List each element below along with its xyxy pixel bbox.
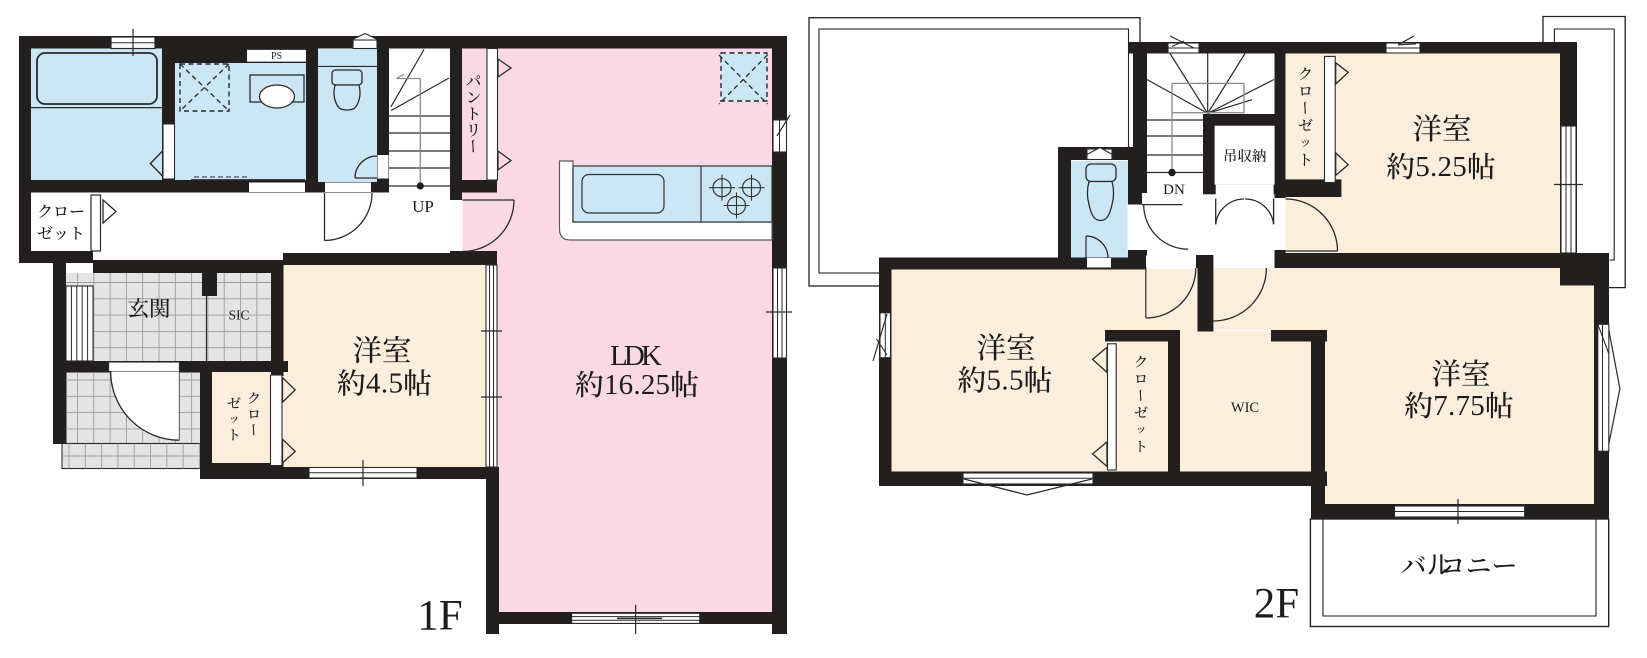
svg-text:DN: DN bbox=[1163, 182, 1185, 198]
svg-text:PS: PS bbox=[271, 51, 282, 62]
svg-text:16.25: 16.25 bbox=[604, 369, 670, 401]
svg-text:UP: UP bbox=[412, 197, 434, 216]
svg-text:ル: ル bbox=[1427, 551, 1453, 580]
svg-text:4.5: 4.5 bbox=[366, 368, 403, 400]
svg-text:1F: 1F bbox=[417, 593, 462, 640]
svg-text:2F: 2F bbox=[1254, 581, 1299, 628]
svg-text:LDK: LDK bbox=[610, 340, 662, 372]
svg-text:WIC: WIC bbox=[1231, 400, 1259, 416]
svg-text:SIC: SIC bbox=[228, 308, 249, 323]
svg-text:7.75: 7.75 bbox=[1433, 390, 1485, 422]
svg-text:5.25: 5.25 bbox=[1415, 151, 1467, 183]
svg-text:5.5: 5.5 bbox=[986, 365, 1023, 397]
